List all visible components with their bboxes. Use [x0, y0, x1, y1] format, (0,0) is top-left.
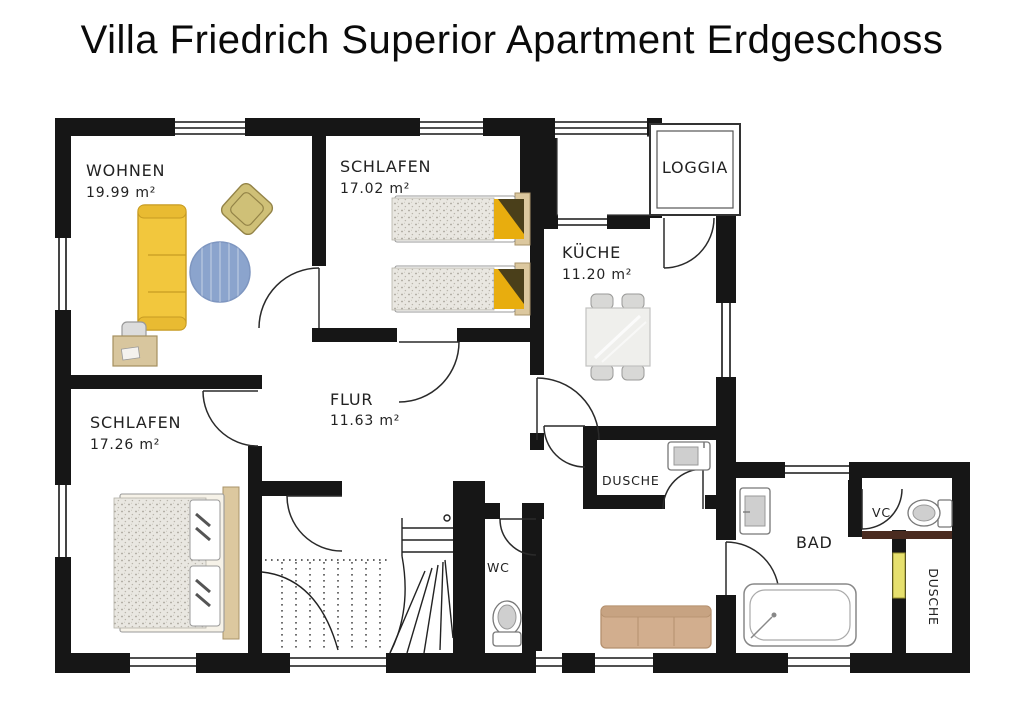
room-name: SCHLAFEN: [340, 157, 431, 176]
chair: [591, 365, 613, 380]
room-label-kueche: KÜCHE 11.20 m²: [562, 243, 632, 283]
wall-hall-bad-lower: [716, 595, 736, 670]
vc-toilet: [908, 500, 952, 527]
armchair-tan: [219, 181, 275, 237]
shower-room-sink: [668, 442, 710, 470]
room-label-schlafen-bottom: SCHLAFEN 17.26 m²: [90, 413, 181, 453]
room-name: WOHNEN: [86, 161, 165, 180]
room-label-flur: FLUR 11.63 m²: [330, 390, 400, 429]
window-bottom-hall: [595, 651, 653, 675]
single-bed-2: [392, 263, 530, 315]
room-area: 17.02 m²: [340, 181, 410, 197]
wall-stair-wc: [453, 481, 485, 657]
staircase: [262, 515, 453, 653]
wall-dusche-top: [597, 426, 736, 440]
room-label-wc: WC: [487, 560, 510, 575]
window-kitchen-lightwell: [558, 213, 607, 231]
window-wing-top: [785, 460, 849, 480]
chair: [622, 294, 644, 309]
room-label-dusche-mid: DUSCHE: [602, 473, 660, 488]
bed-headboard: [223, 487, 239, 639]
window-bottom-stairs: [290, 651, 386, 675]
room-area: 11.20 m²: [562, 267, 632, 283]
wall-dusche-left: [583, 426, 597, 502]
door-dusche-mid: [663, 469, 703, 509]
door-schlafen2: [203, 391, 258, 446]
room-label-dusche-right: DUSCHE: [926, 568, 941, 626]
hall-couch: [601, 606, 711, 648]
wall-right-mid: [716, 375, 736, 464]
lightwell: [557, 136, 650, 215]
wall-kitchen-left: [530, 223, 544, 375]
wall-schlafen2-right: [248, 446, 262, 658]
floor-plan: WOHNEN 19.99 m² SCHLAFEN 17.02 m² KÜCHE …: [50, 110, 975, 680]
sofa-yellow: [138, 205, 186, 330]
page-title: Villa Friedrich Superior Apartment Erdge…: [0, 18, 1024, 63]
wall-flur-top-b: [457, 328, 532, 342]
room-area: 11.63 m²: [330, 413, 400, 429]
wall-right-upper: [716, 208, 736, 308]
room-label-bad: BAD: [796, 533, 833, 552]
chair: [622, 365, 644, 380]
window-bottom-schlafen2: [130, 651, 196, 675]
window-top-wohnen: [175, 116, 245, 138]
room-name: KÜCHE: [562, 243, 621, 262]
window-kitchen-right: [714, 303, 738, 377]
round-rug: [190, 240, 250, 304]
wall-wohnen-schlafen: [312, 136, 326, 266]
double-bed: [114, 487, 239, 639]
room-label-loggia: LOGGIA: [662, 158, 728, 177]
wall-wc-right: [522, 503, 542, 653]
wall-dusche-bottom-a: [583, 495, 665, 509]
bed-blanket: [392, 268, 494, 310]
wall-dusche-bottom-b: [705, 495, 736, 509]
single-bed-1: [392, 193, 530, 245]
bad-sink: [740, 488, 770, 534]
shower-door-panel-yellow: [893, 553, 905, 598]
room-label-schlafen-top: SCHLAFEN 17.02 m²: [340, 157, 431, 197]
room-name: FLUR: [330, 390, 373, 409]
bed-pillow: [190, 500, 220, 560]
room-name: SCHLAFEN: [90, 413, 181, 432]
wall-wc-top-a: [485, 503, 500, 519]
door-stairs: [287, 496, 342, 551]
wc-toilet: [493, 601, 521, 646]
chair: [591, 294, 613, 309]
room-area: 17.26 m²: [90, 437, 160, 453]
door-vestibule: [544, 426, 585, 467]
dining-set: [586, 294, 650, 380]
floor-plan-page: Villa Friedrich Superior Apartment Erdge…: [0, 0, 1024, 717]
door-schlafen1: [399, 342, 459, 402]
wall-wohnen-bottom: [55, 375, 262, 389]
bed-blanket: [392, 198, 494, 240]
bed-pillow: [190, 566, 220, 626]
room-label-wohnen: WOHNEN 19.99 m²: [86, 161, 165, 201]
room-area: 19.99 m²: [86, 185, 156, 201]
floor-plan-svg: WOHNEN 19.99 m² SCHLAFEN 17.02 m² KÜCHE …: [50, 110, 975, 680]
door-loggia: [664, 218, 714, 268]
window-top-schlafen: [420, 116, 483, 138]
door-wohnen: [259, 268, 319, 328]
wall-left: [55, 118, 71, 673]
window-left-schlafen2: [53, 485, 73, 557]
window-top-lightwell: [555, 116, 647, 138]
wall-stair-top: [262, 481, 342, 496]
window-bottom-wc: [536, 651, 562, 675]
room-label-vc: VC: [872, 505, 891, 520]
wall-wing-right: [952, 462, 970, 673]
window-left-wohnen: [53, 238, 73, 310]
wall-flur-top-a: [312, 328, 397, 342]
wall-bad-vc: [848, 476, 862, 537]
window-bottom-bad: [788, 651, 850, 675]
bathtub: [744, 584, 856, 646]
wall-vc-bottom-accent: [862, 531, 952, 539]
stair-pivot: [444, 515, 450, 521]
